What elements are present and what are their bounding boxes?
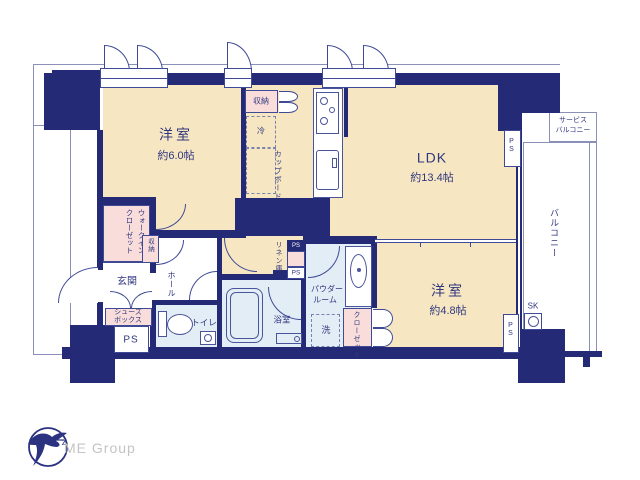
wall (583, 357, 590, 367)
corridor-line (70, 130, 71, 354)
storage-door-arc (279, 102, 298, 113)
entrance-label: 玄関 (117, 277, 137, 288)
ps-entrance-label: PS (123, 335, 138, 346)
shoe-box-label-2: ボックス (114, 317, 142, 325)
wall (52, 70, 100, 84)
service-balcony-label-2: バルコニー (556, 127, 591, 135)
toilet-sink-basin (204, 334, 212, 342)
ldk-label: LDK (417, 150, 447, 165)
bedroom2-label: 洋室 (431, 283, 465, 298)
bedroom1-label: 洋室 (159, 127, 193, 142)
wall (498, 73, 522, 131)
cupboard-label: カップボード (274, 150, 282, 201)
fridge-label: 冷 (257, 128, 265, 137)
toilet-door-arc (189, 271, 217, 300)
wall (518, 329, 565, 383)
wall (235, 198, 330, 236)
hall-label: ホール (167, 271, 175, 298)
sliding-partition (375, 239, 518, 243)
building-outline (33, 354, 63, 355)
hall-storage-label: 収納 (146, 238, 153, 253)
corridor-line (33, 125, 44, 126)
kitchen-window (224, 68, 252, 88)
ps-top-right-label: PS (508, 138, 515, 154)
powder-room-label-1: パウダー (311, 286, 343, 295)
linen-label: リネン庫 (275, 241, 282, 273)
storage-door-arc (279, 91, 298, 102)
shoe-box-door-arc (131, 291, 152, 308)
linen-cabinet (287, 251, 305, 267)
shoe-box-door-arc (110, 291, 131, 308)
bath-drain (294, 336, 300, 342)
service-balcony-label-1: サービス (559, 117, 587, 125)
shoe-box-label-1: シューズ (114, 309, 142, 317)
toilet-tank (158, 311, 167, 337)
ps-linen-top: PS (287, 240, 305, 251)
floor-plan: サービス バルコニー バルコニー ウォークイン (0, 0, 640, 480)
partition-tick (420, 243, 421, 247)
wall (70, 325, 115, 383)
bedroom2-size: 約4.8帖 (429, 305, 466, 317)
bedroom2-closet-label: クローゼット (353, 311, 360, 359)
ps-bottom-right-label: PS (507, 322, 514, 338)
stove-burner (320, 97, 328, 105)
wall (150, 300, 222, 305)
ps-linen-bottom-label: PS (292, 269, 301, 276)
washer-label: 洗 (321, 326, 330, 336)
stove-burner (329, 107, 335, 113)
kitchen-sink (316, 150, 339, 190)
brand-text: ME Group (64, 440, 136, 456)
wall (217, 238, 222, 348)
bathroom-label: 浴室 (273, 315, 290, 324)
vanity-faucet (357, 268, 361, 272)
powder-room-label-2: ルーム (313, 297, 337, 306)
bedroom1-window (100, 68, 168, 88)
toilet-bowl (167, 314, 193, 335)
closet-door-arc (373, 309, 393, 328)
wall (44, 83, 100, 130)
balcony-label: バルコニー (549, 208, 558, 258)
partition-tick (470, 243, 471, 247)
bathtub-inner (230, 292, 259, 339)
walk-in-closet-label: ウォークイン クローゼット (107, 209, 147, 259)
toilet-label: トイレ (191, 318, 217, 327)
kitchen-faucet (332, 158, 337, 168)
sk-label: SK (528, 303, 539, 312)
closet-door-arc (373, 328, 393, 347)
cupboard-space (246, 148, 276, 194)
wall (155, 230, 246, 238)
wic-door-arc (156, 240, 184, 265)
bedroom1-size: 約6.0帖 (157, 150, 194, 162)
wall (303, 236, 376, 244)
stove-burner (320, 117, 328, 125)
wic-label-line2: クローゼット (123, 209, 135, 259)
kitchen-storage-label: 収納 (253, 98, 269, 107)
ldk-window (322, 68, 396, 88)
entry-door-arc (58, 267, 98, 303)
sk-basin (528, 316, 539, 327)
balcony-rail-line (589, 143, 590, 353)
ldk-size: 約13.4帖 (410, 172, 453, 184)
building-outline (33, 64, 34, 355)
